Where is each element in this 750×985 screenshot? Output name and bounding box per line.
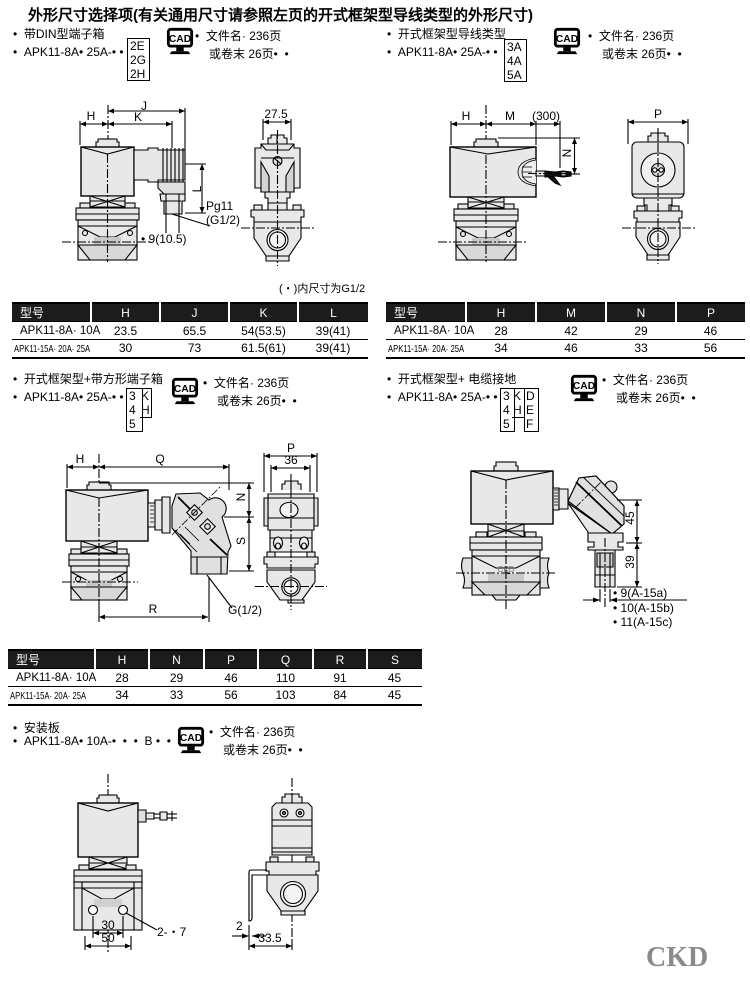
svg-text:2-・7: 2-・7 <box>157 925 187 939</box>
svg-text:(G1/2): (G1/2) <box>206 213 240 227</box>
svg-text:• 10(A-15b): • 10(A-15b) <box>613 601 674 615</box>
svg-text:CAD: CAD <box>556 34 578 45</box>
svg-text:30: 30 <box>101 918 115 932</box>
svg-text:36: 36 <box>284 453 298 467</box>
svg-text:33.5: 33.5 <box>258 931 282 945</box>
svg-text:2: 2 <box>236 919 243 933</box>
svg-text:R: R <box>149 602 158 616</box>
svg-text:• 11(A-15c): • 11(A-15c) <box>613 615 672 629</box>
svg-text:(300): (300) <box>532 109 560 123</box>
svg-text:45: 45 <box>623 511 637 525</box>
svg-text:• 9(10.5): • 9(10.5) <box>141 232 187 246</box>
svg-text:M: M <box>505 109 515 123</box>
svg-text:CAD: CAD <box>180 733 202 744</box>
svg-text:P: P <box>654 107 662 121</box>
svg-text:N: N <box>234 493 248 502</box>
svg-text:27.5: 27.5 <box>264 107 288 121</box>
svg-text:H: H <box>87 109 96 123</box>
svg-text:H: H <box>76 452 85 466</box>
svg-text:50: 50 <box>101 931 115 945</box>
svg-text:L: L <box>190 185 204 192</box>
svg-text:CAD: CAD <box>174 384 196 395</box>
svg-text:CAD: CAD <box>573 381 595 392</box>
svg-text:Q: Q <box>155 452 164 466</box>
svg-text:K: K <box>134 110 142 124</box>
svg-text:CAD: CAD <box>169 34 191 45</box>
svg-text:Pg11: Pg11 <box>206 199 233 213</box>
svg-text:N: N <box>560 149 574 158</box>
svg-text:• 9(A-15a): • 9(A-15a) <box>613 586 667 600</box>
svg-text:S: S <box>234 537 248 545</box>
svg-text:H: H <box>462 109 471 123</box>
svg-text:39: 39 <box>623 555 637 569</box>
